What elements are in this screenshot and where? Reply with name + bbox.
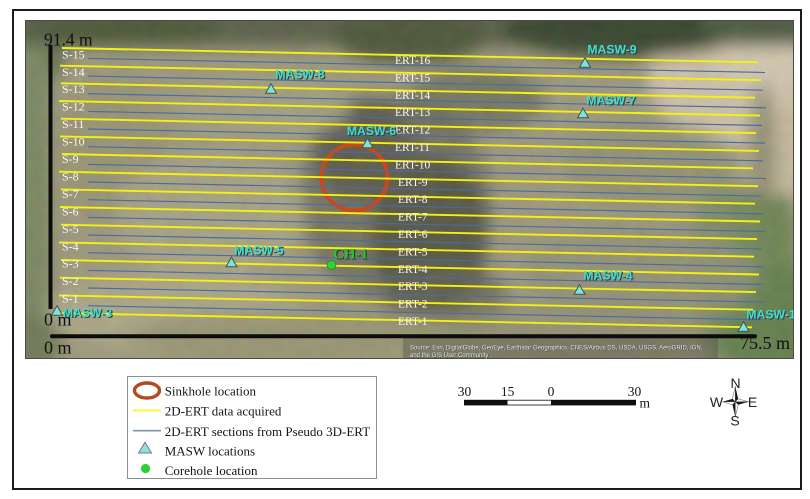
svg-text:S-10: S-10 xyxy=(62,135,85,149)
svg-text:CH-1: CH-1 xyxy=(333,247,368,263)
svg-text:W: W xyxy=(710,394,724,410)
svg-text:S-15: S-15 xyxy=(62,47,85,61)
svg-text:30: 30 xyxy=(458,384,472,399)
svg-text:ERT-11: ERT-11 xyxy=(395,142,430,154)
svg-text:ERT-9: ERT-9 xyxy=(398,177,428,189)
svg-text:ERT-3: ERT-3 xyxy=(398,281,428,293)
svg-text:ERT-15: ERT-15 xyxy=(395,72,431,84)
svg-text:MASW-8: MASW-8 xyxy=(275,68,324,82)
svg-text:E: E xyxy=(748,394,757,410)
svg-text:S-8: S-8 xyxy=(62,170,79,184)
svg-text:Corehole location: Corehole location xyxy=(165,463,258,478)
svg-text:Sinkhole location: Sinkhole location xyxy=(165,383,257,398)
svg-text:MASW-1: MASW-1 xyxy=(746,308,794,322)
svg-text:MASW-6: MASW-6 xyxy=(347,124,396,138)
svg-text:S-3: S-3 xyxy=(62,257,79,271)
svg-text:S-2: S-2 xyxy=(62,274,79,288)
svg-text:ERT-6: ERT-6 xyxy=(398,229,428,241)
svg-text:ERT-8: ERT-8 xyxy=(398,194,428,206)
svg-text:m: m xyxy=(640,396,651,411)
svg-text:ERT-14: ERT-14 xyxy=(395,90,431,102)
svg-text:S-12: S-12 xyxy=(62,100,85,114)
svg-text:MASW-7: MASW-7 xyxy=(586,94,635,108)
svg-text:ERT-7: ERT-7 xyxy=(398,212,428,224)
svg-text:Source: Esri, DigitalGlobe, Ge: Source: Esri, DigitalGlobe, GeoEye, Eart… xyxy=(410,346,703,352)
svg-text:S-13: S-13 xyxy=(62,82,85,96)
svg-text:0: 0 xyxy=(548,384,555,399)
svg-text:S-7: S-7 xyxy=(62,187,79,201)
svg-text:0 m: 0 m xyxy=(44,338,72,358)
svg-text:ERT-4: ERT-4 xyxy=(398,264,428,276)
svg-text:S-5: S-5 xyxy=(62,222,79,236)
svg-text:ERT-10: ERT-10 xyxy=(395,159,431,171)
svg-text:ERT-12: ERT-12 xyxy=(395,125,431,137)
svg-text:2D-ERT sections from Pseudo 3D: 2D-ERT sections from Pseudo 3D-ERT xyxy=(165,424,371,439)
svg-text:ERT-2: ERT-2 xyxy=(398,299,428,311)
svg-text:15: 15 xyxy=(501,384,515,399)
svg-text:S-1: S-1 xyxy=(62,292,79,306)
svg-text:ERT-16: ERT-16 xyxy=(395,55,431,67)
svg-text:MASW-4: MASW-4 xyxy=(583,268,632,282)
svg-text:S-9: S-9 xyxy=(62,152,79,166)
svg-text:MASW-3: MASW-3 xyxy=(63,306,112,320)
svg-text:S-6: S-6 xyxy=(62,204,79,218)
svg-text:S-4: S-4 xyxy=(62,239,79,253)
svg-text:and the GIS User Community: and the GIS User Community xyxy=(410,353,488,359)
svg-text:ERT-1: ERT-1 xyxy=(398,316,428,328)
svg-text:S-11: S-11 xyxy=(62,117,84,131)
svg-text:MASW-5: MASW-5 xyxy=(234,244,283,258)
svg-text:MASW locations: MASW locations xyxy=(165,443,255,458)
svg-text:2D-ERT data acquired: 2D-ERT data acquired xyxy=(165,404,282,419)
svg-text:MASW-9: MASW-9 xyxy=(587,43,636,57)
svg-text:S-14: S-14 xyxy=(62,65,85,79)
svg-text:75.5 m: 75.5 m xyxy=(740,333,790,353)
svg-text:ERT-5: ERT-5 xyxy=(398,246,428,258)
svg-text:ERT-13: ERT-13 xyxy=(395,107,431,119)
